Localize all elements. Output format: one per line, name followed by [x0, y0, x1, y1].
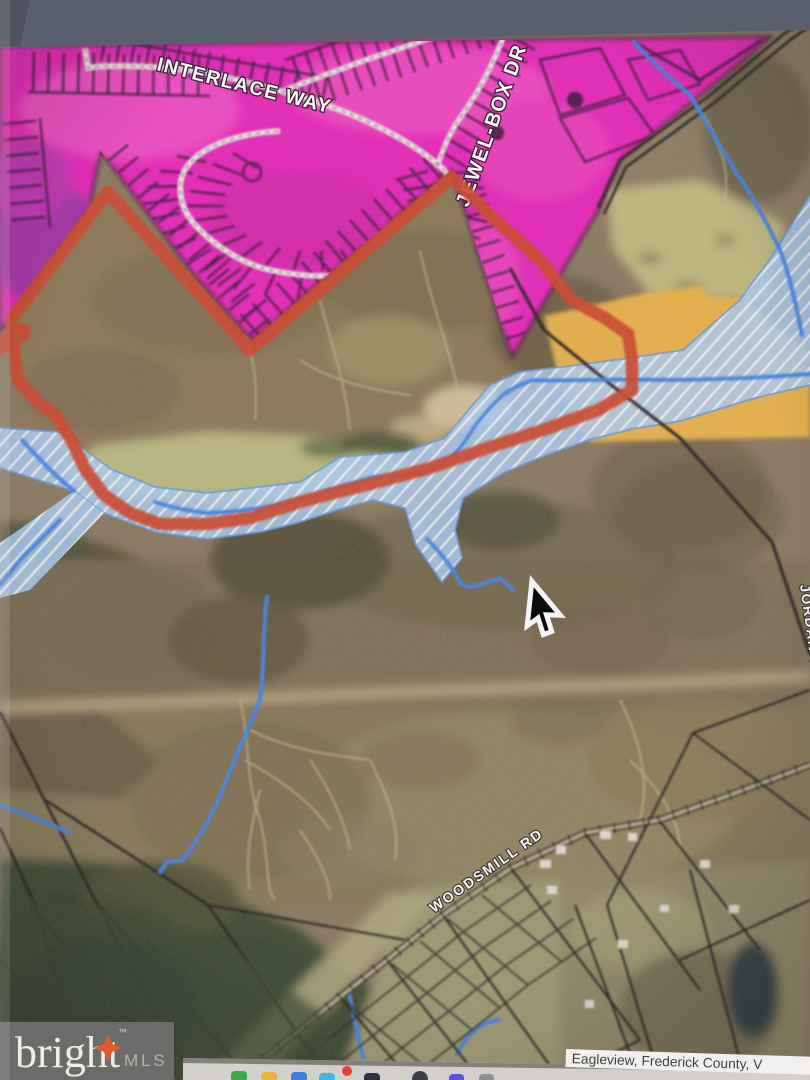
svg-text:MLS: MLS — [124, 1051, 167, 1070]
svg-text:™: ™ — [118, 1027, 127, 1037]
